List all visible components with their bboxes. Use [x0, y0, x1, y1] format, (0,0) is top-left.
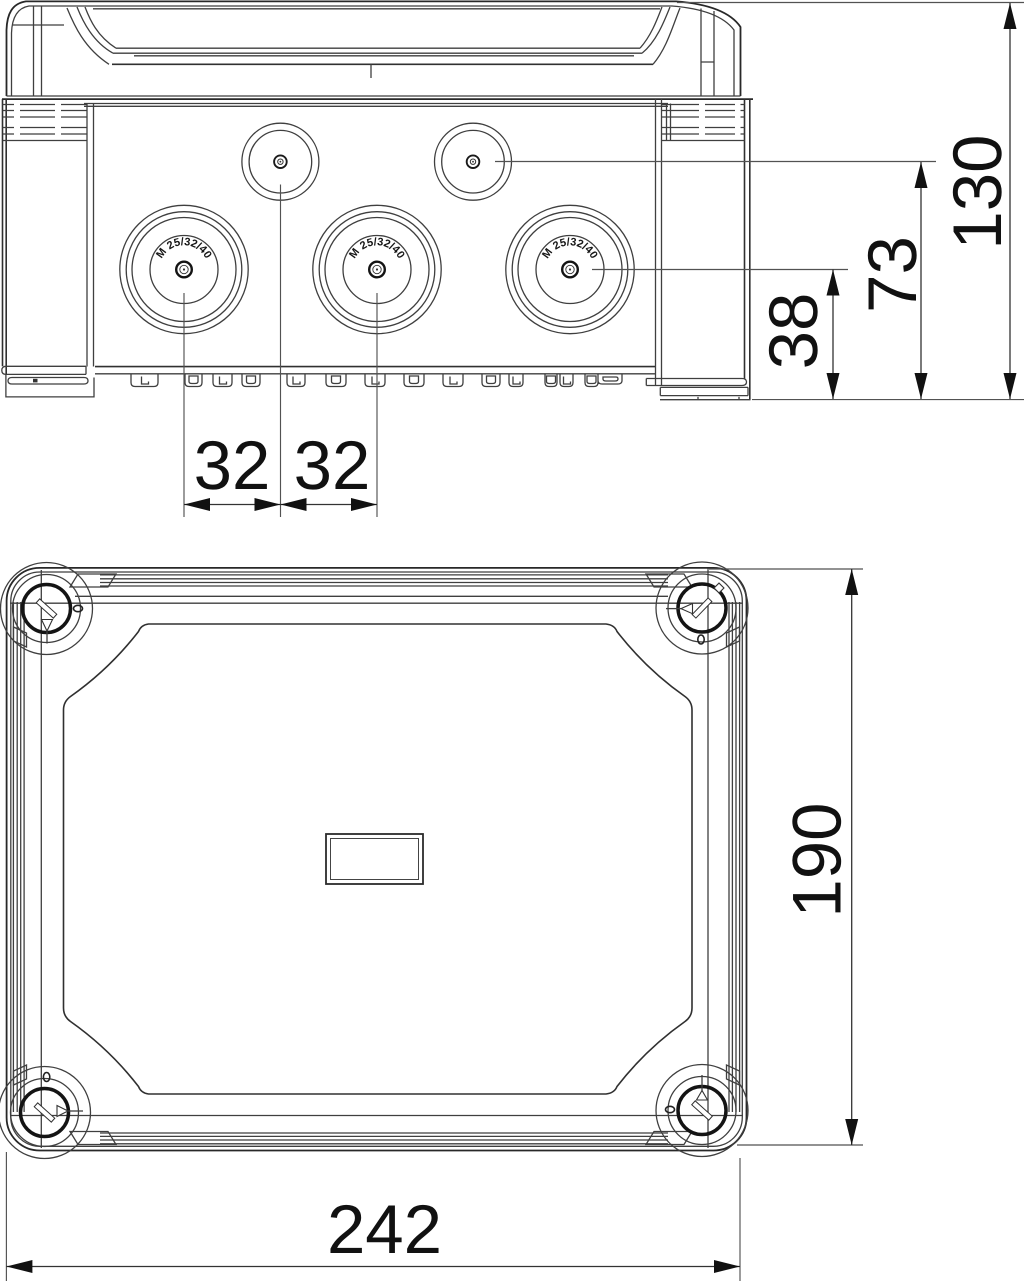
svg-text:38: 38	[755, 293, 832, 370]
svg-text:32: 32	[194, 427, 271, 504]
svg-text:73: 73	[854, 236, 931, 313]
svg-text:242: 242	[327, 1191, 442, 1268]
svg-text:190: 190	[779, 802, 856, 917]
svg-text:130: 130	[939, 134, 1016, 249]
svg-text:32: 32	[294, 427, 371, 504]
